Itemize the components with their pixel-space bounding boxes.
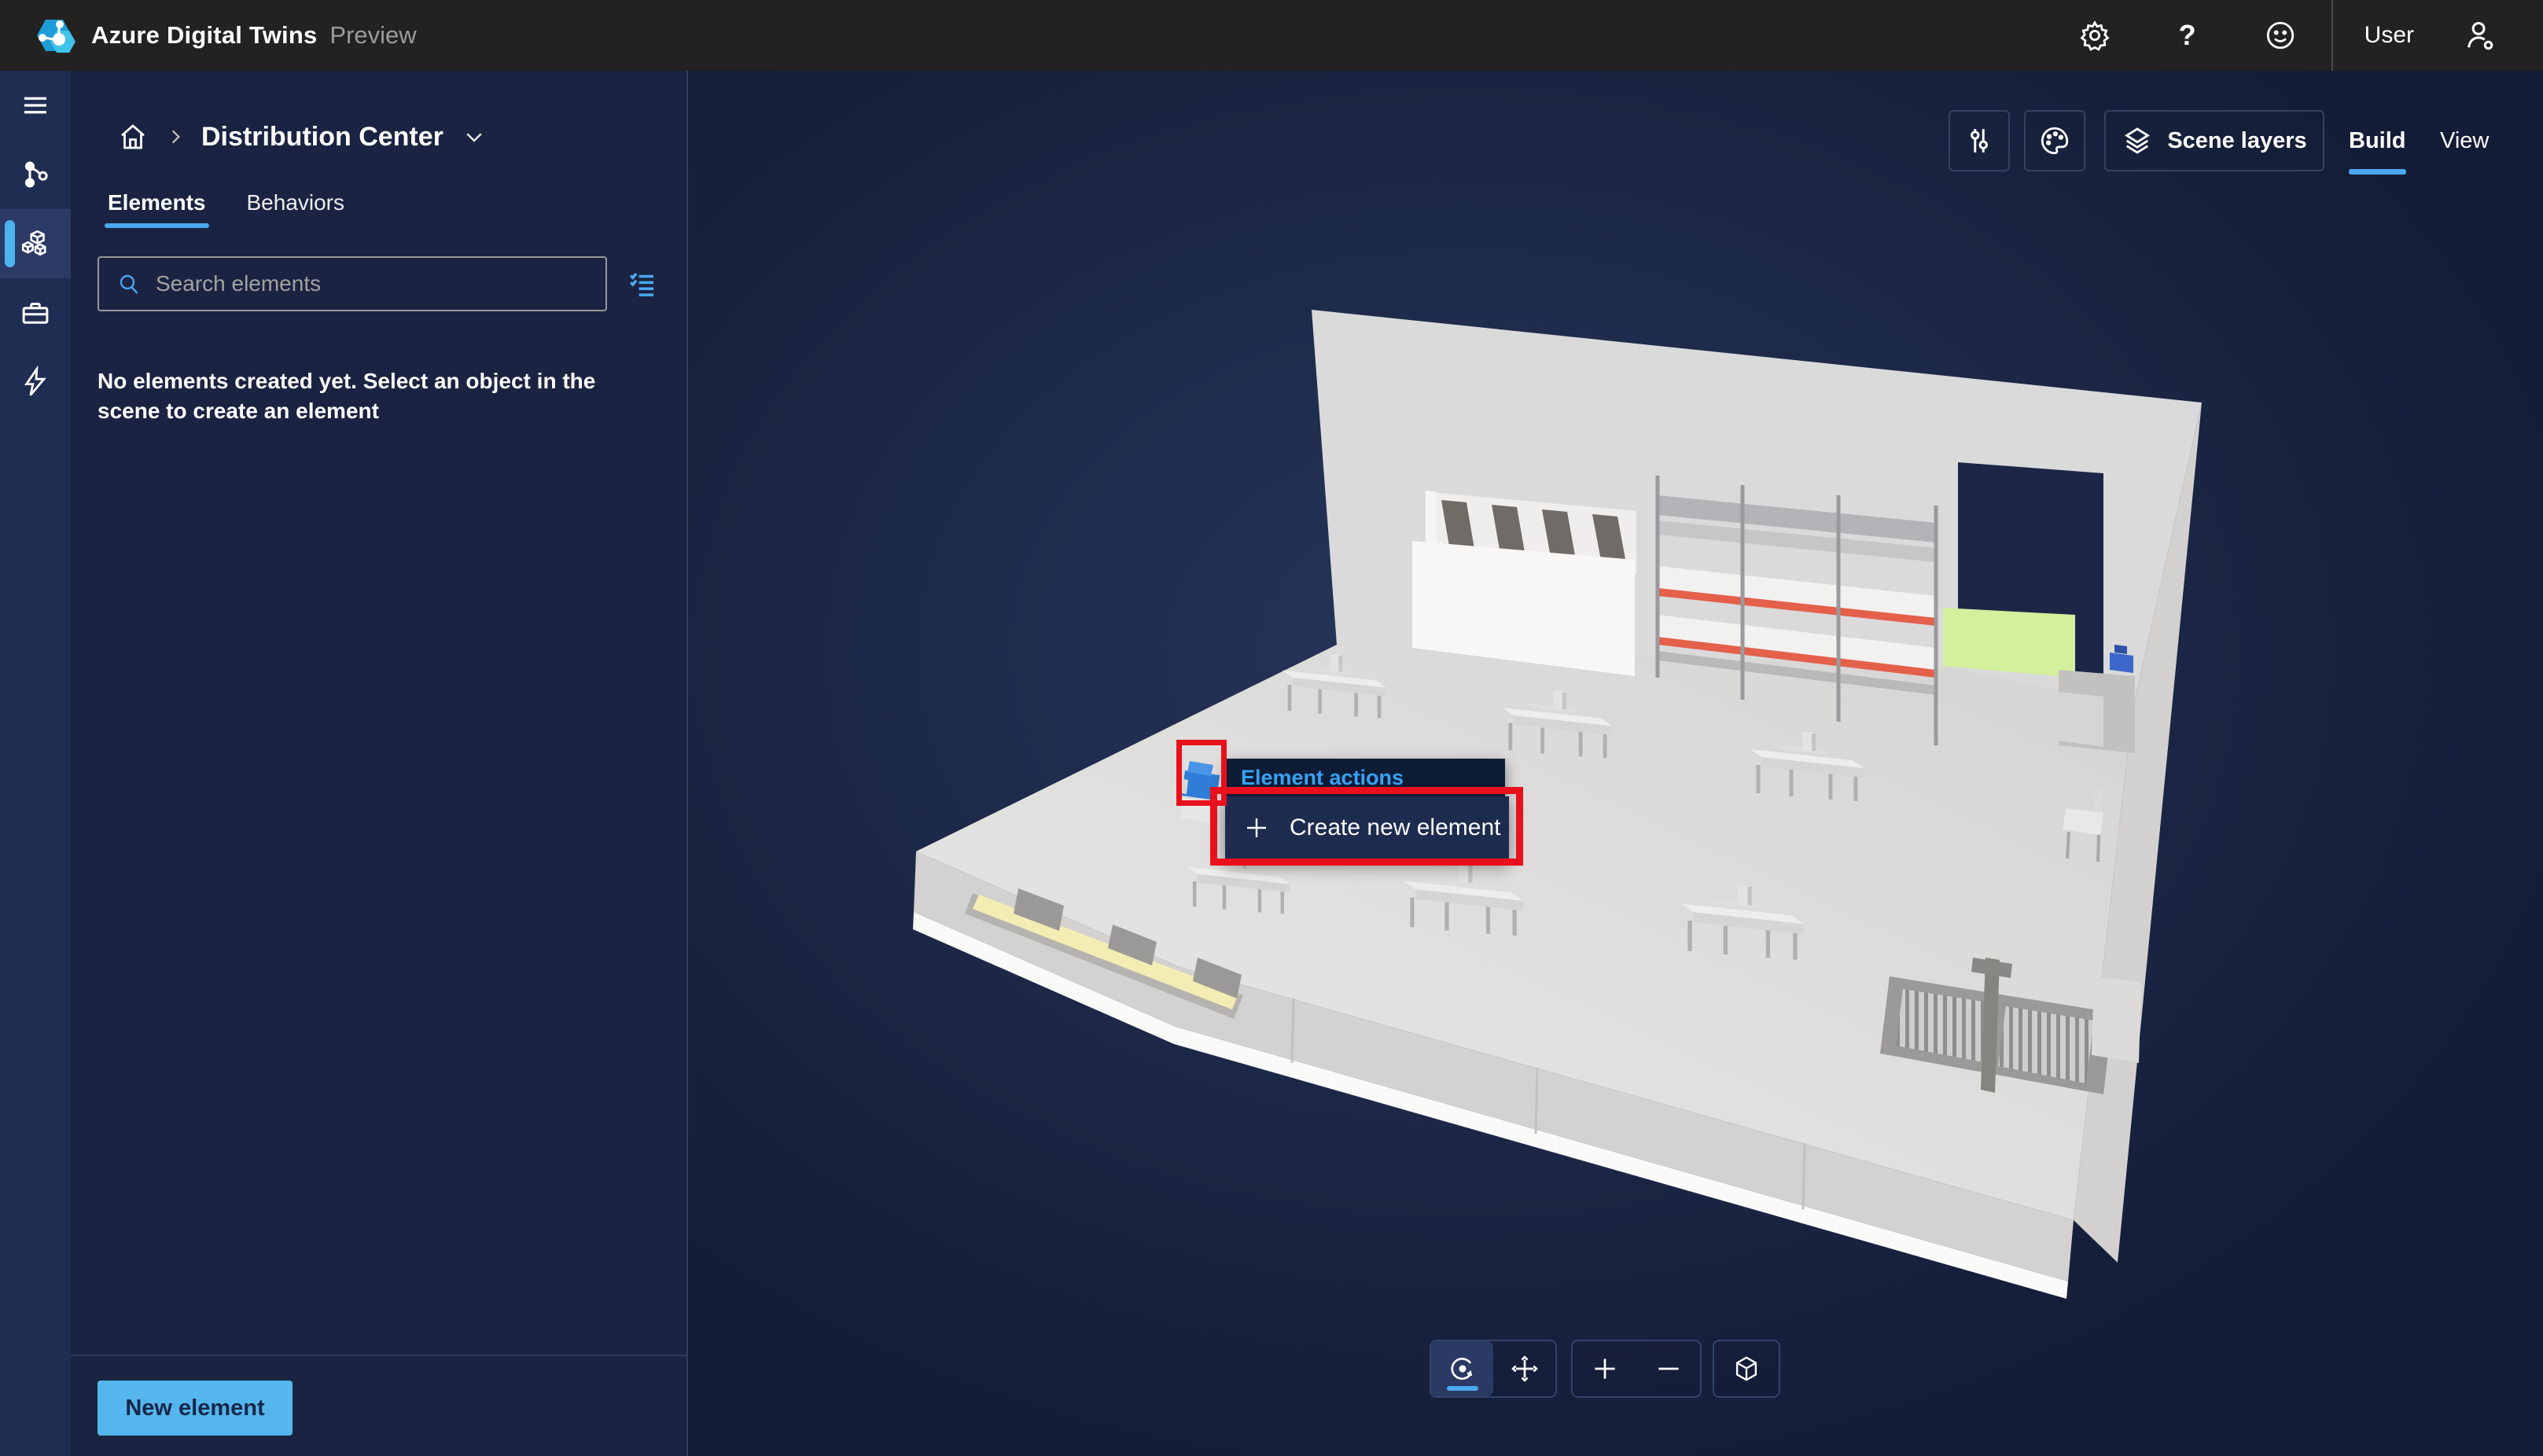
layers-icon xyxy=(2122,125,2153,156)
user-settings-button[interactable] xyxy=(2438,0,2523,71)
minus-icon xyxy=(1654,1354,1684,1384)
gear-icon xyxy=(2078,19,2111,52)
panel-footer-divider xyxy=(71,1355,688,1356)
sliders-icon xyxy=(1963,124,1996,157)
3d-viewport[interactable]: Scene layers Build View xyxy=(688,71,2543,1456)
scene-name[interactable]: Distribution Center xyxy=(201,122,443,153)
pan-button[interactable] xyxy=(1493,1341,1555,1396)
reset-view-group xyxy=(1713,1340,1780,1398)
theme-button[interactable] xyxy=(2024,110,2085,171)
reset-view-button[interactable] xyxy=(1714,1341,1779,1396)
toolbox-icon xyxy=(19,296,52,329)
feedback-button[interactable] xyxy=(2234,0,2327,71)
breadcrumb: Distribution Center xyxy=(116,112,486,162)
lightning-icon xyxy=(19,366,52,399)
topbar-actions: ? User xyxy=(2048,0,2523,71)
zoom-out-button[interactable] xyxy=(1636,1341,1700,1396)
topbar-divider xyxy=(2331,0,2333,71)
help-button[interactable]: ? xyxy=(2141,0,2234,71)
empty-state-message: No elements created yet. Select an objec… xyxy=(98,366,653,426)
elements-panel: Distribution Center Elements Behaviors N… xyxy=(71,71,688,1456)
top-app-bar: Azure Digital Twins Preview ? User xyxy=(0,0,2543,71)
camera-mode-group xyxy=(1430,1340,1557,1398)
breadcrumb-chevron-icon xyxy=(165,127,186,147)
tab-build[interactable]: Build xyxy=(2349,110,2406,171)
bin-divider-unit[interactable] xyxy=(1412,491,1636,676)
hamburger-menu-icon xyxy=(19,89,52,122)
annotation-box-create-new-element xyxy=(1210,787,1523,866)
cubes-icon xyxy=(19,227,52,260)
user-name-label: User xyxy=(2338,22,2438,49)
green-floor-zone[interactable] xyxy=(1943,608,2075,678)
app-title: Azure Digital Twins xyxy=(91,21,317,50)
nav-scenes-button[interactable] xyxy=(0,209,71,278)
search-icon xyxy=(116,271,142,296)
scene-options-button[interactable] xyxy=(1949,110,2010,171)
left-nav-rail xyxy=(0,71,71,1456)
twin-graph-icon xyxy=(19,158,52,191)
panel-tabs: Elements Behaviors xyxy=(108,190,344,228)
tab-elements[interactable]: Elements xyxy=(108,190,206,228)
orbit-icon xyxy=(1448,1354,1478,1384)
scene-layers-button[interactable]: Scene layers xyxy=(2104,110,2324,171)
cube-icon xyxy=(1732,1354,1761,1384)
nav-twin-graph-button[interactable] xyxy=(0,140,71,209)
nav-events-button[interactable] xyxy=(0,347,71,417)
azure-digital-twins-logo xyxy=(33,13,77,57)
zoom-in-button[interactable] xyxy=(1573,1341,1636,1396)
settings-button[interactable] xyxy=(2048,0,2141,71)
pan-move-icon xyxy=(1510,1354,1540,1384)
scene-switcher-caret[interactable] xyxy=(462,125,486,149)
help-icon: ? xyxy=(2179,19,2196,52)
new-element-button[interactable]: New element xyxy=(98,1381,293,1436)
search-row xyxy=(98,256,661,311)
plus-icon xyxy=(1590,1354,1620,1384)
search-input[interactable] xyxy=(156,271,596,296)
app-preview-badge: Preview xyxy=(329,21,416,50)
nav-toolbox-button[interactable] xyxy=(0,278,71,347)
smiley-icon xyxy=(2264,19,2297,52)
chevron-down-icon xyxy=(462,125,486,149)
nav-menu-button[interactable] xyxy=(0,71,71,140)
palette-icon xyxy=(2038,124,2071,157)
tab-behaviors[interactable]: Behaviors xyxy=(247,190,345,228)
orbit-button[interactable] xyxy=(1431,1341,1493,1396)
element-actions-title: Element actions xyxy=(1241,766,1404,790)
forklift[interactable] xyxy=(2110,653,2133,673)
checklist-icon xyxy=(626,268,659,301)
search-elements-box[interactable] xyxy=(98,256,607,311)
home-icon[interactable] xyxy=(116,120,149,153)
zoom-group xyxy=(1571,1340,1702,1398)
person-gear-icon xyxy=(2462,17,2498,53)
tab-view[interactable]: View xyxy=(2440,110,2489,171)
warehouse-3d-scene[interactable] xyxy=(688,71,2543,1456)
scene-layers-label: Scene layers xyxy=(2167,128,2306,154)
multiselect-button[interactable] xyxy=(624,267,661,302)
